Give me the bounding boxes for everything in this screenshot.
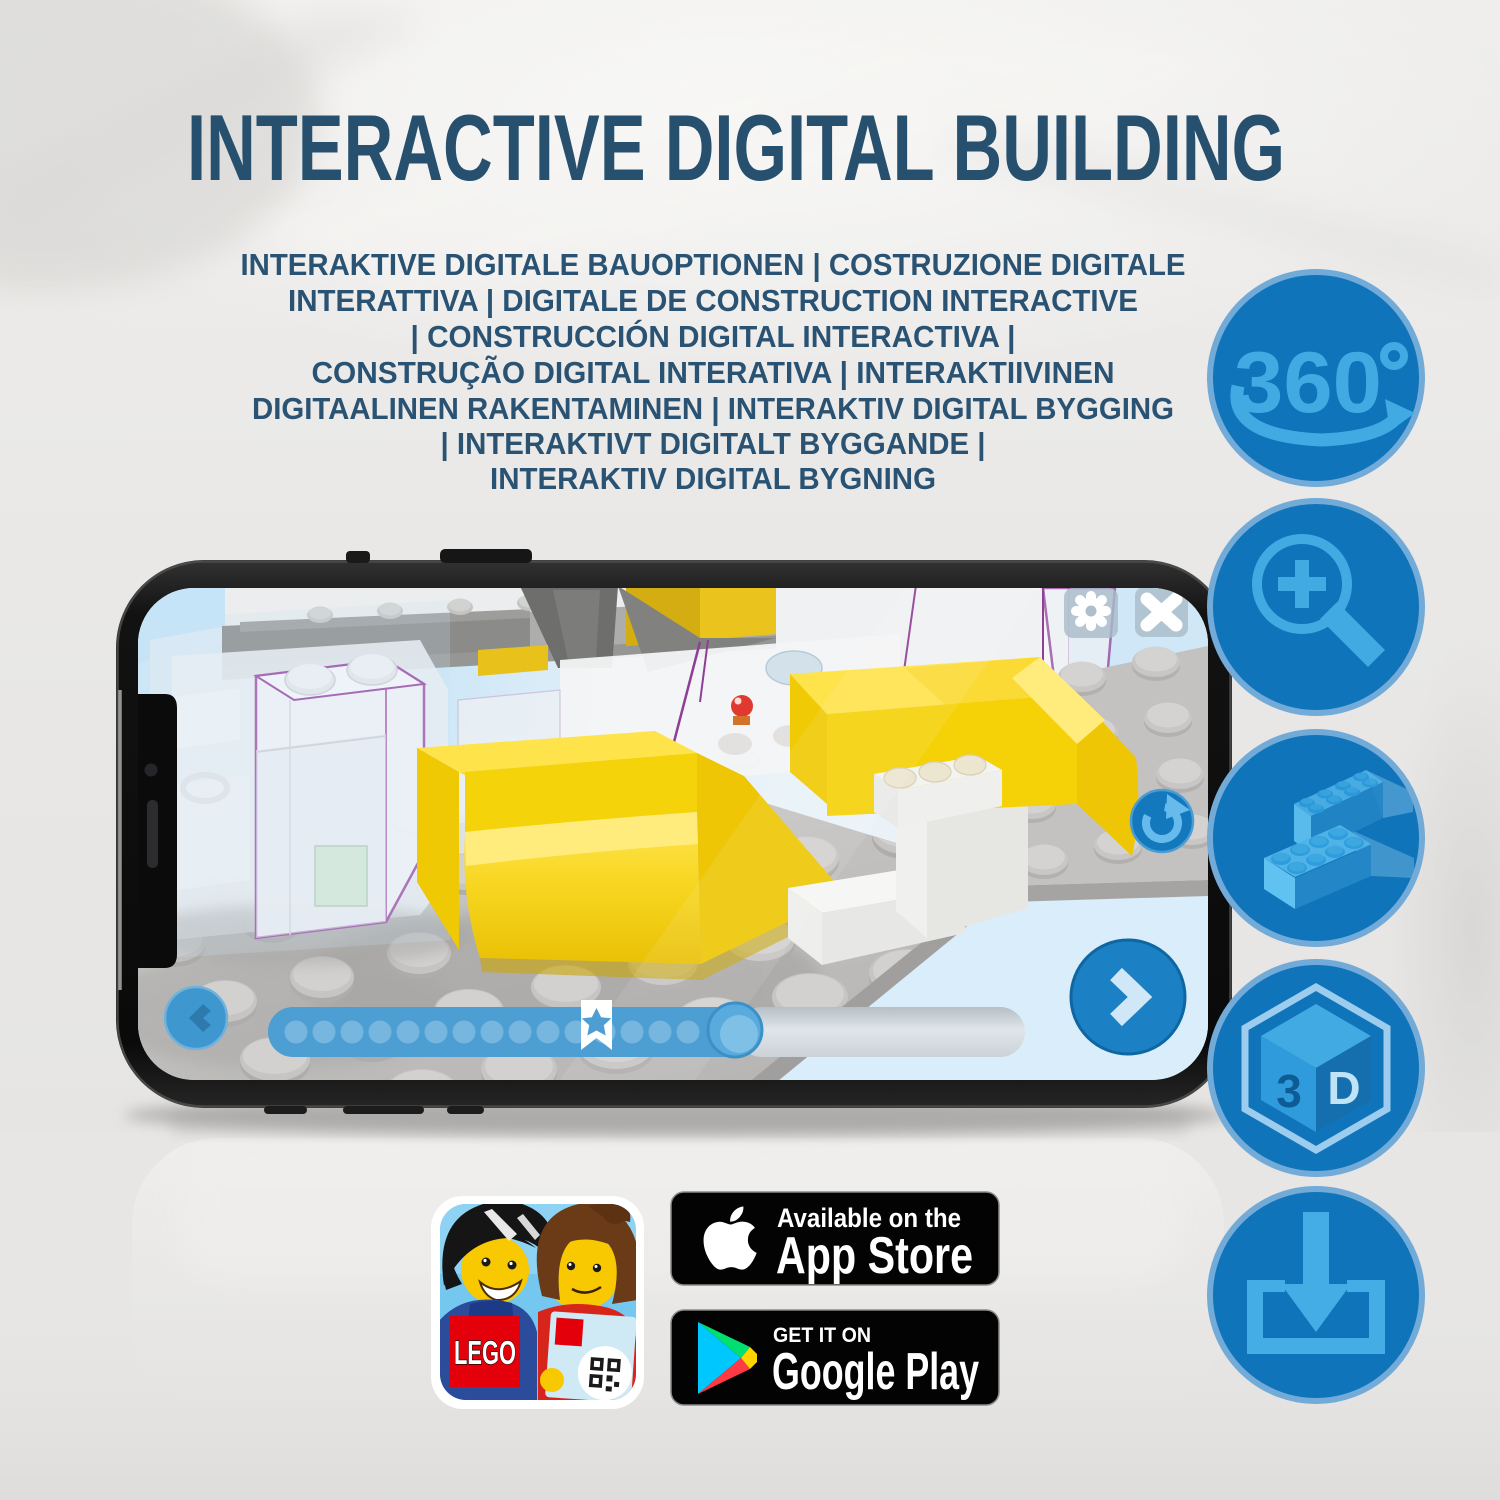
svg-text:INTERAKTIV DIGITAL BYGNING: INTERAKTIV DIGITAL BYGNING (490, 461, 936, 496)
svg-text:INTERATTIVA | DIGITALE DE CONS: INTERATTIVA | DIGITALE DE CONSTRUCTION I… (288, 283, 1138, 318)
svg-text:Google Play: Google Play (772, 1343, 979, 1401)
svg-text:CONSTRUÇÃO DIGITAL INTERATIVA: CONSTRUÇÃO DIGITAL INTERATIVA | INTERAKT… (312, 355, 1115, 390)
svg-text:| CONSTRUCCIÓN DIGITAL INTERAC: | CONSTRUCCIÓN DIGITAL INTERACTIVA | (411, 318, 1016, 354)
svg-text:App Store: App Store (776, 1227, 973, 1285)
svg-text:D: D (1327, 1062, 1360, 1114)
svg-text:DIGITAALINEN RAKENTAMINEN | IN: DIGITAALINEN RAKENTAMINEN | INTERAKTIV D… (252, 391, 1174, 426)
svg-text:INTERAKTIVE DIGITALE BAUOPTION: INTERAKTIVE DIGITALE BAUOPTIONEN | COSTR… (241, 247, 1186, 282)
svg-text:INTERACTIVE DIGITAL BUILDING: INTERACTIVE DIGITAL BUILDING (187, 95, 1285, 200)
svg-text:LEGO: LEGO (454, 1334, 516, 1371)
svg-text:360: 360 (1234, 335, 1382, 431)
svg-text:3: 3 (1276, 1065, 1302, 1117)
svg-text:| INTERAKTIVT DIGITALT BYGGAND: | INTERAKTIVT DIGITALT BYGGANDE | (441, 426, 986, 461)
